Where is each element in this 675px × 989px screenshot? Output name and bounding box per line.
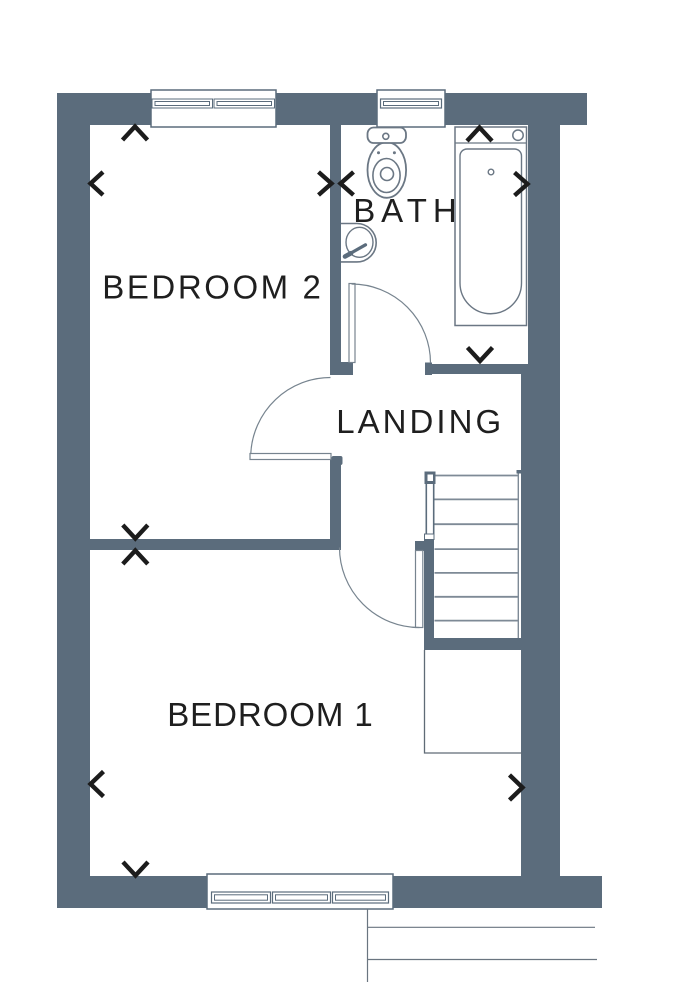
svg-text:BEDROOM 1: BEDROOM 1 xyxy=(167,696,373,733)
svg-text:BEDROOM 2: BEDROOM 2 xyxy=(102,268,320,305)
svg-text:BATH: BATH xyxy=(353,192,457,229)
svg-text:LANDING: LANDING xyxy=(336,403,501,440)
